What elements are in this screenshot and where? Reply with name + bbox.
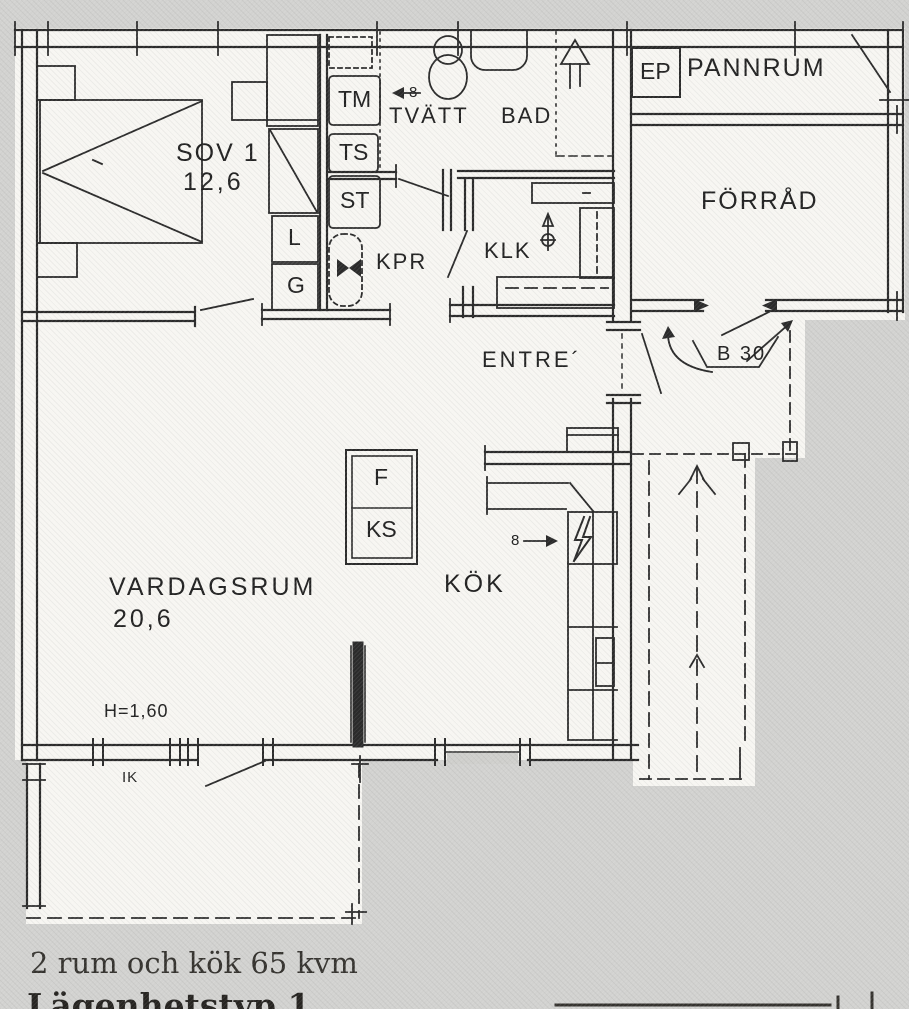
caption-apartment-type: Lägenhetstyp 1 [27,986,310,1009]
sink-icon [471,30,527,70]
pannrum-door-swing [852,35,890,92]
annotation-drain-tvatt: 8 [409,85,417,100]
klk-door-leaf [448,231,467,277]
kitchen-counter [487,428,618,740]
annotation-b30: B 30 [717,344,766,364]
entrance-door-leaf [642,334,661,393]
terrace-door-leaf [206,761,265,786]
valve-icon [337,259,349,277]
room-label-sov1: SOV 1 [176,141,260,166]
toilet-icon [429,55,467,99]
stove-lightning-icon [574,517,591,561]
cabinet-label-g: G [287,274,305,297]
cutoff-text-marks [556,993,872,1009]
floor-plan-linework [0,0,909,1009]
drain-arrow-icon [392,87,404,99]
sov1-door-leaf [201,299,253,310]
chimney-hatch [351,646,365,742]
cabinet-label-tm: TM [338,88,371,111]
room-label-kok: KÖK [444,572,506,597]
room-label-forrad: FÖRRÅD [701,189,819,214]
bathroom-fixtures [429,30,612,156]
walkway-path [633,331,798,779]
cabinet-label-st: ST [340,189,369,212]
annotation-ik: IK [122,770,138,785]
room-label-tvatt: TVÄTT [389,105,469,127]
terrace-outline [23,756,368,924]
room-area-vardagsrum: 20,6 [113,607,174,632]
annotation-drain-kok: 8 [511,533,519,548]
room-label-klk: KLK [484,240,532,262]
cabinet-label-ep: EP [640,60,671,83]
room-label-kpr: KPR [376,251,427,273]
swing-arrow-icon [662,326,675,339]
cabinet-label-f: F [374,466,388,489]
cabinet-label-l: L [288,226,301,249]
valve-icon [349,259,361,277]
room-label-vardagsrum: VARDAGSRUM [109,575,316,600]
cabinet-label-ks: KS [366,518,397,541]
caption-apartment-size: 2 rum och kök 65 kvm [30,946,358,980]
forrad-door-leaf [722,312,769,335]
hat-shelf [567,428,618,452]
wardrobe-cabinets [267,35,318,310]
annotation-ceiling-height: H=1,60 [104,702,169,720]
scanned-floor-plan-page: SOV 1 12,6 TVÄTT BAD KLK KPR ENTRE´ PANN… [0,0,909,1009]
room-label-entre: ENTRE´ [482,349,582,371]
room-label-pannrum: PANNRUM [687,56,826,81]
drain-arrow-icon [546,535,558,547]
room-area-sov1: 12,6 [183,170,244,195]
south-wall-windows [22,739,638,786]
cabinet-label-ts: TS [339,141,368,164]
walkway-post [733,443,749,460]
vent-arrow-icon [561,40,589,64]
room-label-bad: BAD [501,105,552,127]
outer-walls [15,22,909,760]
laundry-appliance-boxes [329,32,380,306]
